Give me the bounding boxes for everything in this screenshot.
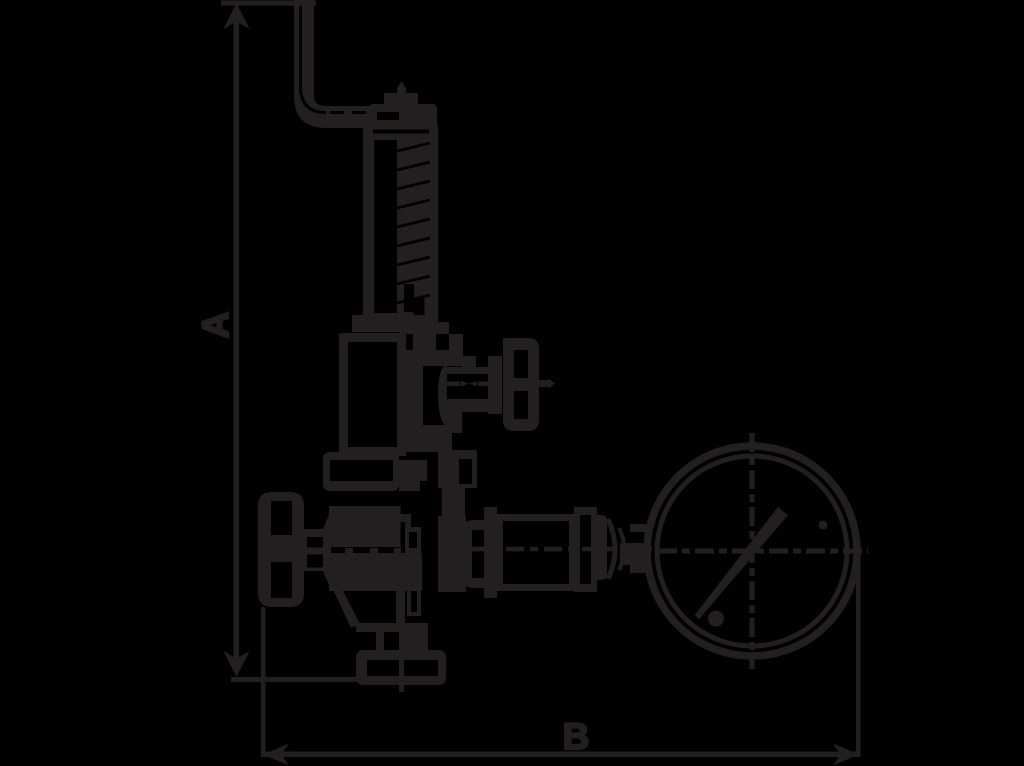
svg-text:A: A: [195, 312, 236, 339]
svg-text:B: B: [563, 716, 590, 757]
